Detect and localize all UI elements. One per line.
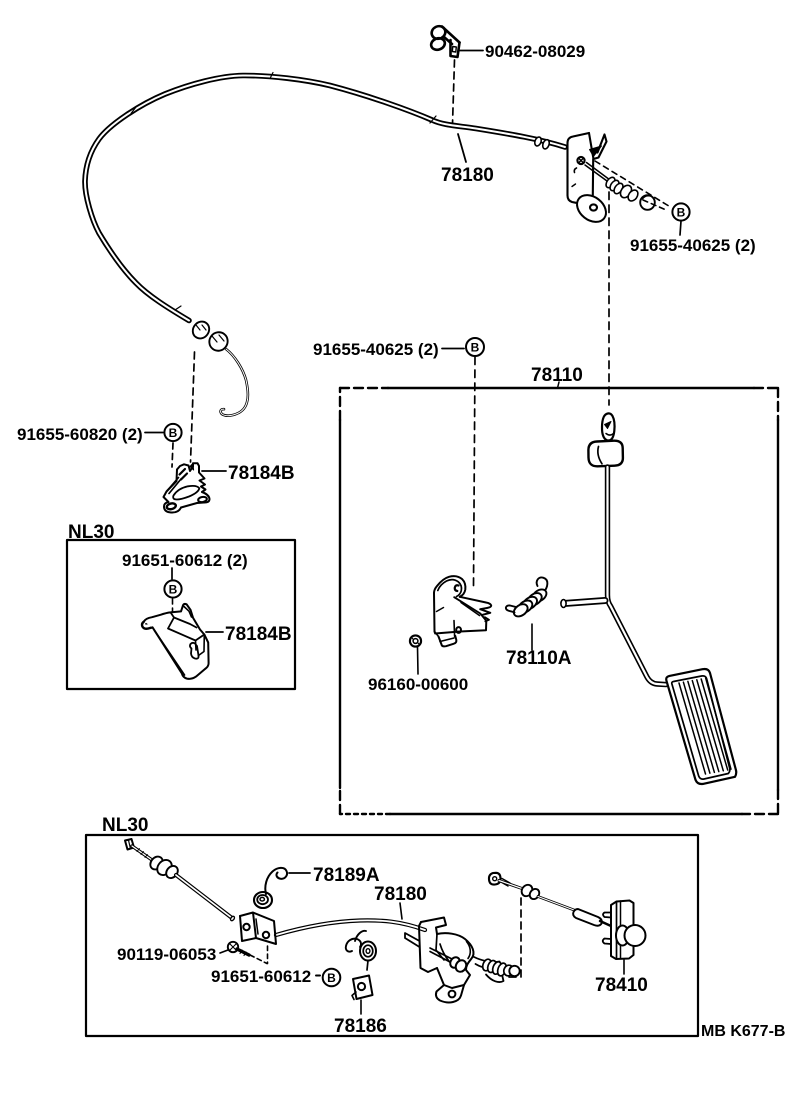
svg-text:78180: 78180 [374,884,427,905]
svg-text:90119-06053: 90119-06053 [117,945,216,964]
svg-text:91651-60612: 91651-60612 [211,967,311,986]
svg-text:78410: 78410 [595,975,648,996]
svg-text:78184B: 78184B [228,463,295,484]
svg-text:96160-00600: 96160-00600 [368,675,468,694]
svg-text:91655-40625 (2): 91655-40625 (2) [313,340,439,359]
svg-text:78110A: 78110A [506,648,572,669]
svg-text:B: B [169,583,178,597]
svg-text:B: B [169,426,178,440]
svg-text:91651-60612 (2): 91651-60612 (2) [122,551,248,570]
svg-text:91655-60820 (2): 91655-60820 (2) [17,425,143,444]
svg-text:78180: 78180 [441,165,494,186]
svg-text:MB K677-B: MB K677-B [701,1023,785,1040]
svg-text:78110: 78110 [531,365,583,386]
svg-text:78186: 78186 [334,1016,387,1037]
svg-text:90462-08029: 90462-08029 [485,42,585,61]
svg-text:NL30: NL30 [102,815,148,836]
svg-text:B: B [471,341,480,355]
svg-text:78189A: 78189A [313,865,380,886]
svg-text:B: B [327,971,336,985]
svg-text:B: B [677,206,686,220]
svg-text:78184B: 78184B [225,624,292,645]
svg-text:91655-40625 (2): 91655-40625 (2) [630,236,756,255]
